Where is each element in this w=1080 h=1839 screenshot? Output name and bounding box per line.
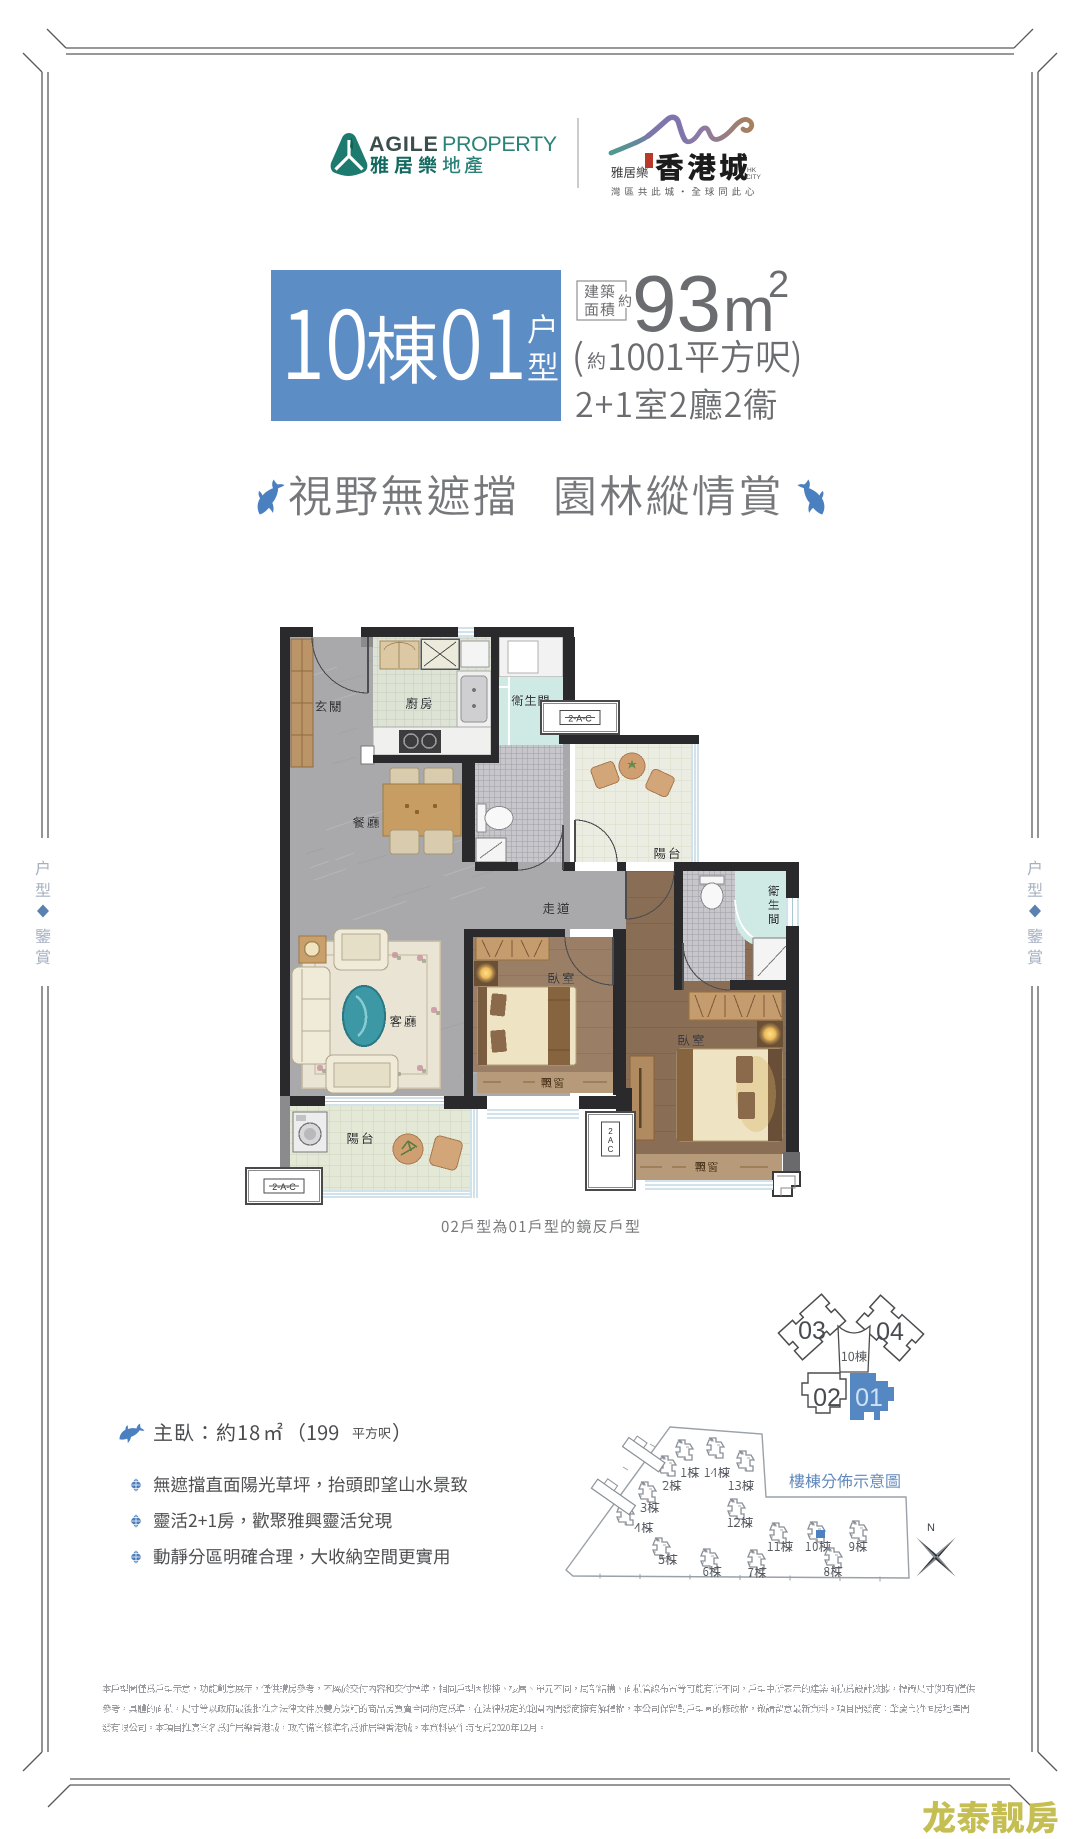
svg-text:HK: HK (747, 167, 757, 174)
svg-text:A: A (608, 1136, 614, 1145)
svg-text:2-A-C: 2-A-C (272, 1182, 296, 1192)
svg-text:01: 01 (855, 1384, 883, 1412)
svg-text:C: C (608, 1145, 614, 1154)
svg-text:2: 2 (768, 264, 789, 306)
svg-text:m: m (723, 276, 775, 345)
svg-text:93: 93 (632, 259, 721, 348)
svg-text:CITY: CITY (746, 174, 761, 181)
svg-text:2: 2 (608, 1127, 613, 1136)
svg-text:AGILE: AGILE (369, 132, 439, 156)
svg-text:N: N (927, 1522, 935, 1534)
svg-text:02: 02 (813, 1384, 841, 1412)
svg-text:04: 04 (876, 1318, 904, 1346)
svg-text:PROPERTY: PROPERTY (442, 132, 557, 156)
svg-text:2-A-C: 2-A-C (568, 714, 592, 724)
svg-text:03: 03 (798, 1317, 826, 1345)
